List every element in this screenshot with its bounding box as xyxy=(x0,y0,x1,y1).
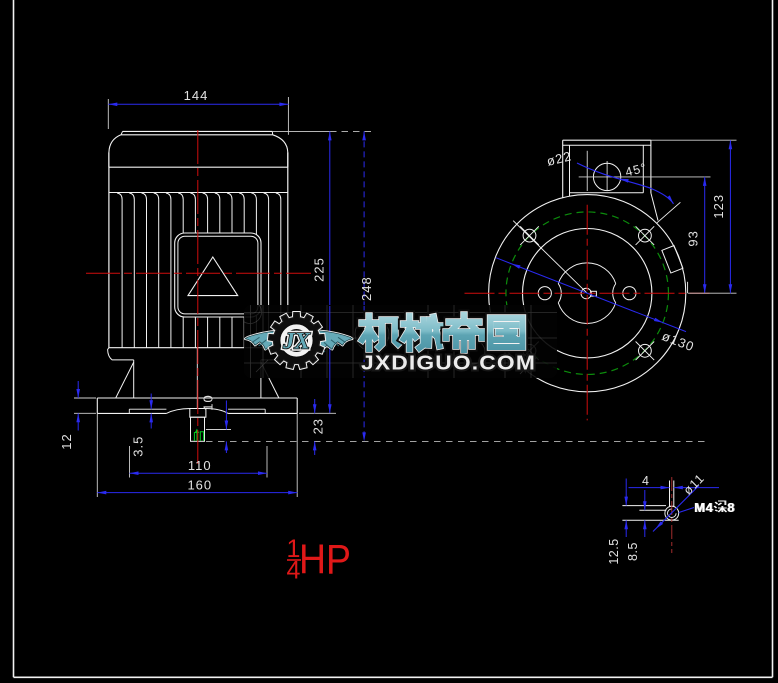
svg-text:160: 160 xyxy=(187,478,212,493)
svg-text:12.5: 12.5 xyxy=(607,538,621,564)
svg-text:93: 93 xyxy=(686,230,701,246)
svg-text:8: 8 xyxy=(727,500,735,515)
svg-text:225: 225 xyxy=(312,257,327,282)
svg-text:JX: JX xyxy=(282,329,311,354)
svg-text:12: 12 xyxy=(59,433,74,449)
svg-text:123: 123 xyxy=(711,194,726,219)
svg-text:144: 144 xyxy=(184,88,209,103)
svg-text:23: 23 xyxy=(310,418,325,434)
svg-text:JXDIGUO.COM: JXDIGUO.COM xyxy=(361,353,536,375)
svg-text:8.5: 8.5 xyxy=(626,542,640,561)
svg-text:4: 4 xyxy=(642,474,650,488)
svg-text:10: 10 xyxy=(201,394,216,410)
svg-text:110: 110 xyxy=(188,458,212,473)
svg-text:HP: HP xyxy=(299,536,351,583)
svg-text:M4: M4 xyxy=(694,500,713,515)
svg-text:3.5: 3.5 xyxy=(131,436,146,457)
svg-text:248: 248 xyxy=(359,276,374,301)
